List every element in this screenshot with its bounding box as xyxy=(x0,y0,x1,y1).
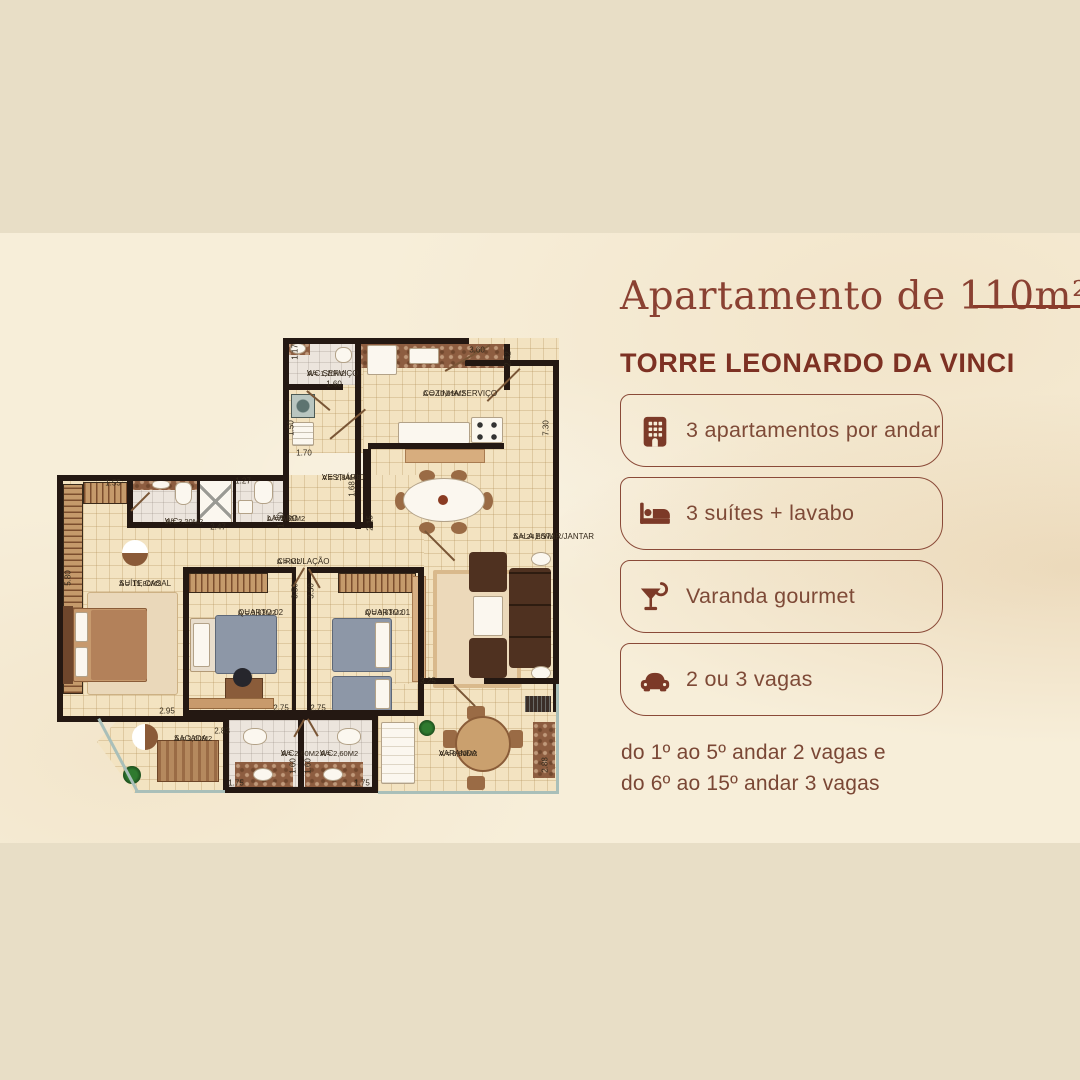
dimension-label: 2.42 xyxy=(504,351,513,367)
dimension-label: 3.50 xyxy=(307,583,316,599)
bed-icon xyxy=(638,495,672,533)
feature-label: Varanda gourmet xyxy=(686,584,855,609)
dimension-label: 2.88 xyxy=(541,757,550,773)
title-rule xyxy=(973,305,1080,308)
building-icon xyxy=(638,412,672,450)
feature-card-vagas: 2 ou 3 vagas xyxy=(620,643,943,716)
parking-note-line2: do 6º ao 15º andar 3 vagas xyxy=(621,768,886,799)
parking-note-line1: do 1º ao 5º andar 2 vagas e xyxy=(621,737,886,768)
flyer-page: { "page": { "title": "Apartamento de 110… xyxy=(0,0,1080,1080)
feature-card-suites: 3 suítes + lavabo xyxy=(620,477,943,550)
floor-plan: WC SERVIÇOA = 1,70M2COZINHA/SERVIÇOA = 1… xyxy=(57,338,560,800)
feature-card-apartments: 3 apartamentos por andar xyxy=(620,394,943,467)
feature-label: 3 apartamentos por andar xyxy=(686,418,941,443)
dimension-label: 2.15 xyxy=(366,515,375,531)
dimension-label: 1.70 xyxy=(296,449,312,458)
dimension-label: 1.27 xyxy=(235,477,251,486)
feature-label: 2 ou 3 vagas xyxy=(686,667,813,692)
parking-note: do 1º ao 5º andar 2 vagas e do 6º ao 15º… xyxy=(621,737,886,799)
dimension-label: 7.30 xyxy=(542,420,551,436)
dimension-label: 1.75 xyxy=(228,779,244,788)
dimension-label: 1.55 xyxy=(105,479,121,488)
dimension-label: 2.47 xyxy=(210,523,226,532)
page-title: Apartamento de 110m² xyxy=(620,274,1080,319)
dimension-label: 1.17 xyxy=(291,344,300,360)
cocktail-icon xyxy=(638,578,672,616)
dimension-label: 5.80 xyxy=(64,570,73,586)
dimension-label: 1.60 xyxy=(289,758,298,774)
dimension-label: 1.60 xyxy=(304,758,313,774)
dimension-label: 2.75 xyxy=(310,704,326,713)
dimension-label: 2.75 xyxy=(273,704,289,713)
feature-label: 3 suítes + lavabo xyxy=(686,501,854,526)
dimension-label: 1.68 xyxy=(348,481,357,497)
car-icon xyxy=(638,661,672,699)
dimension-label: 1.50 xyxy=(287,420,296,436)
tower-name: TORRE LEONARDO DA VINCI xyxy=(620,348,1015,379)
dimension-label: 2.95 xyxy=(159,707,175,716)
dimension-label: 1.60 xyxy=(326,380,342,389)
plan-labels-layer: WC SERVIÇOA = 1,70M2COZINHA/SERVIÇOA = 1… xyxy=(57,338,560,800)
dimension-label: 1.30 xyxy=(277,512,286,528)
dimension-label: 3.25 xyxy=(420,677,436,686)
dimension-label: 2.83 xyxy=(214,727,230,736)
dimension-label: 1.75 xyxy=(354,779,370,788)
feature-card-varanda: Varanda gourmet xyxy=(620,560,943,633)
dimension-label: 3.60 xyxy=(469,346,485,355)
dimension-label: 3.50 xyxy=(291,583,300,599)
